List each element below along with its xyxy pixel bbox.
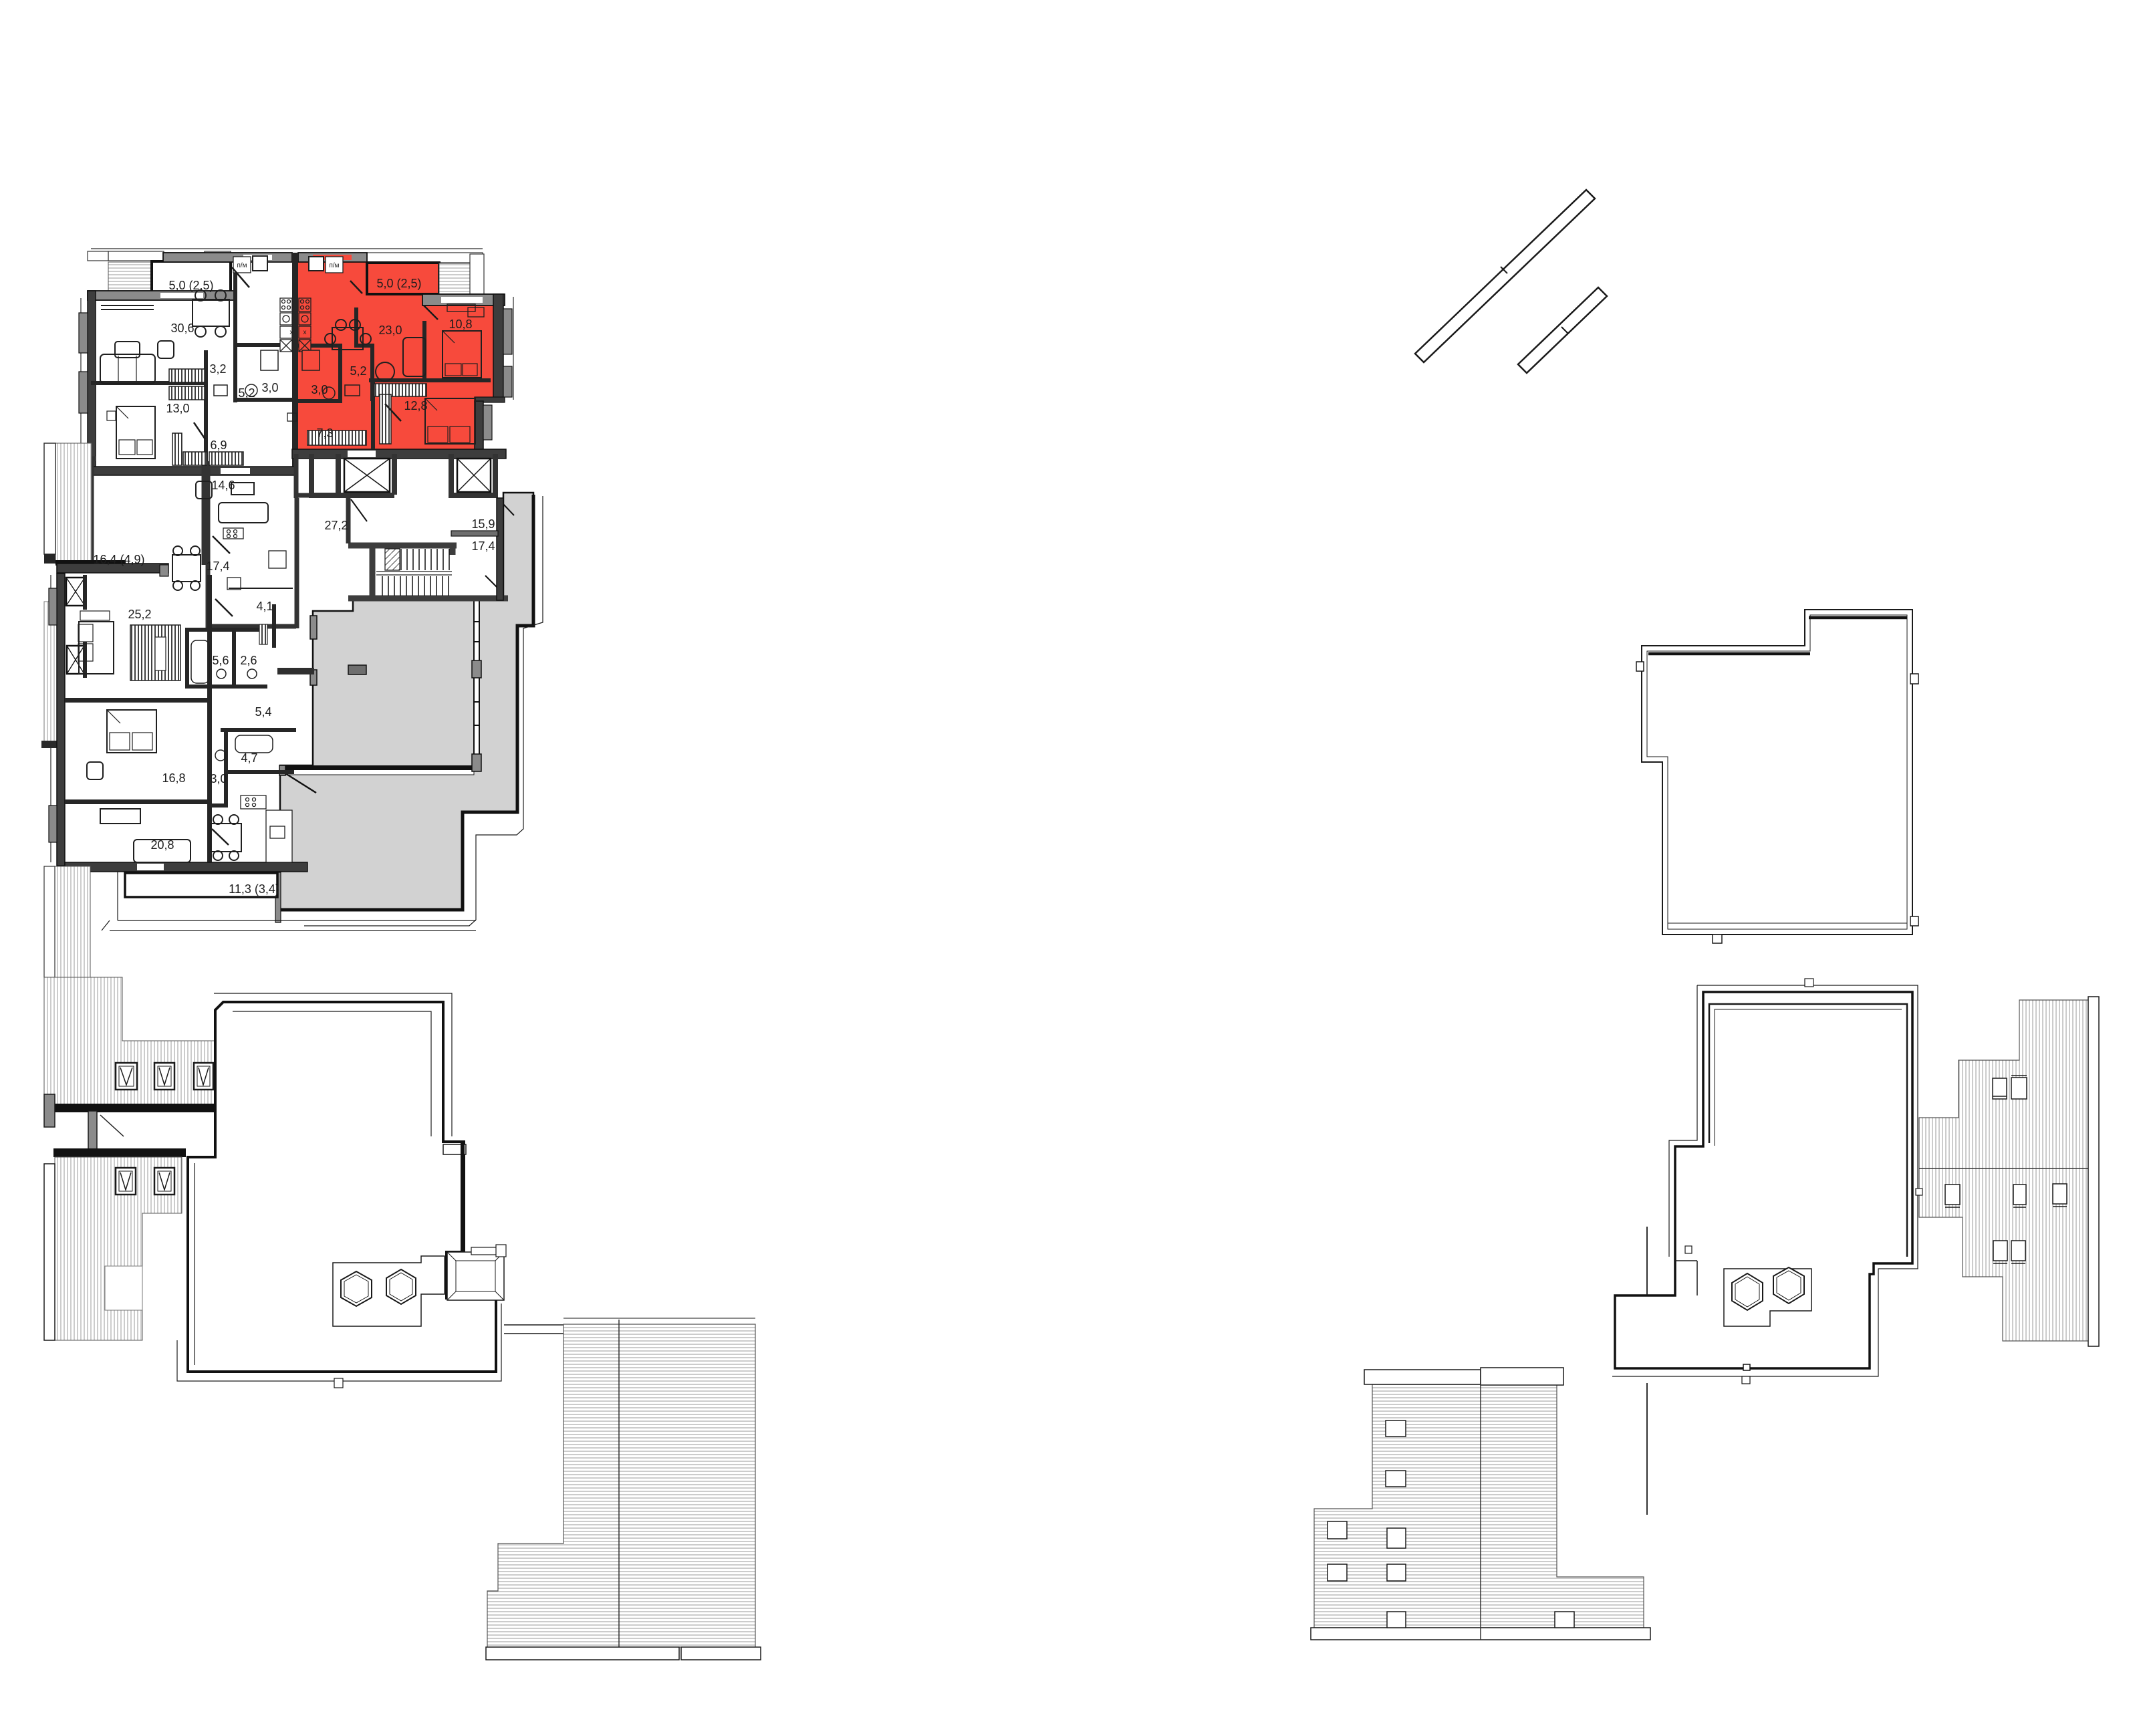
svg-text:16,4 (4,9): 16,4 (4,9) [93, 553, 144, 566]
svg-text:п/м: п/м [329, 262, 339, 269]
svg-text:15,9: 15,9 [471, 517, 495, 531]
svg-text:3,0: 3,0 [311, 383, 328, 396]
svg-text:7,3: 7,3 [316, 426, 333, 440]
svg-text:5,6: 5,6 [212, 654, 229, 667]
svg-text:23,0: 23,0 [378, 324, 402, 337]
svg-text:2,6: 2,6 [240, 654, 257, 667]
svg-text:17,4: 17,4 [206, 560, 229, 573]
svg-text:5,0 (2,5): 5,0 (2,5) [168, 279, 213, 292]
svg-text:3,0: 3,0 [210, 772, 227, 785]
svg-text:10,8: 10,8 [449, 318, 472, 331]
svg-text:5,2: 5,2 [350, 364, 366, 378]
svg-text:20,8: 20,8 [150, 838, 174, 852]
svg-text:5,0 (2,5): 5,0 (2,5) [376, 277, 421, 290]
svg-text:27,2: 27,2 [324, 519, 348, 532]
svg-text:25,2: 25,2 [128, 608, 151, 621]
svg-text:x: x [290, 329, 293, 336]
svg-text:3,0: 3,0 [261, 381, 278, 394]
svg-text:4,1: 4,1 [256, 600, 273, 613]
svg-text:6,9: 6,9 [210, 439, 227, 452]
svg-text:17,4: 17,4 [471, 539, 495, 553]
svg-text:п/м: п/м [237, 262, 247, 269]
svg-text:16,8: 16,8 [162, 771, 185, 785]
svg-text:13,0: 13,0 [166, 402, 189, 415]
svg-text:4,7: 4,7 [241, 751, 257, 765]
svg-text:14,6: 14,6 [211, 479, 235, 492]
svg-text:3,2: 3,2 [209, 362, 226, 376]
svg-text:5,2: 5,2 [238, 386, 255, 400]
svg-text:30,6: 30,6 [170, 322, 194, 335]
svg-text:11,3 (3,4): 11,3 (3,4) [229, 882, 279, 896]
svg-text:12,8: 12,8 [404, 399, 427, 412]
svg-text:x: x [303, 329, 307, 336]
svg-text:5,4: 5,4 [255, 705, 271, 719]
